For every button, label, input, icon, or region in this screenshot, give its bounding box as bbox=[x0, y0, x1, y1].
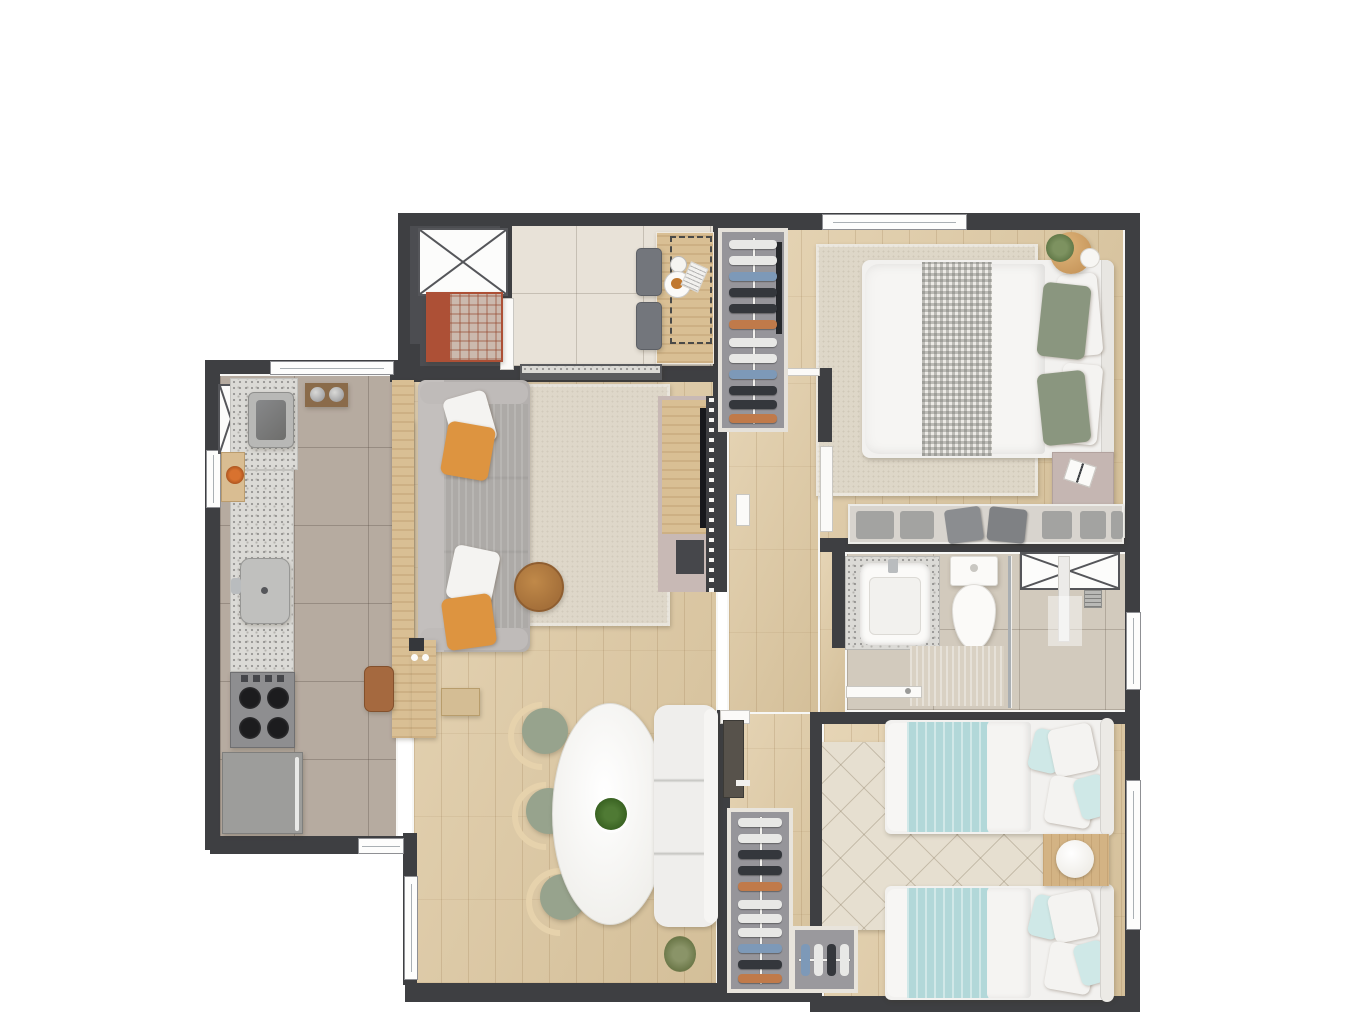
hanging-clothes bbox=[738, 900, 782, 909]
hanging-clothes bbox=[738, 974, 782, 983]
hanging-clothes bbox=[738, 818, 782, 827]
hanging-clothes bbox=[729, 288, 777, 297]
dining-chair-seat bbox=[522, 708, 568, 754]
single-bed bbox=[885, 720, 1114, 834]
door-handle bbox=[905, 688, 911, 694]
white-pillow bbox=[1046, 722, 1099, 778]
hanging-clothes bbox=[738, 882, 782, 891]
orange-pillow bbox=[441, 593, 498, 651]
hanging-clothes bbox=[801, 944, 810, 976]
tall-wardrobe bbox=[727, 808, 793, 993]
hanging-clothes bbox=[729, 256, 777, 265]
folded-clothes bbox=[1111, 511, 1123, 539]
cooktop bbox=[230, 672, 295, 748]
entry-chair bbox=[636, 248, 662, 296]
shower-glass-partition bbox=[1008, 556, 1011, 708]
checked-throw bbox=[922, 262, 992, 456]
duvet-fold bbox=[987, 722, 1031, 832]
floor-plan bbox=[0, 0, 1365, 1024]
fridge-handle bbox=[295, 757, 299, 831]
folded-clothes bbox=[1080, 511, 1106, 539]
hanging-clothes bbox=[729, 320, 777, 329]
window-bedroom2-east bbox=[1126, 780, 1141, 930]
master-dresser bbox=[848, 504, 1124, 544]
hanging-clothes bbox=[738, 834, 782, 843]
table-centerpiece-plant bbox=[595, 798, 627, 830]
elevator-shaft bbox=[418, 228, 508, 296]
kitchen-faucet bbox=[231, 578, 241, 594]
master-door-leaf bbox=[820, 446, 833, 532]
entry-chair bbox=[636, 302, 662, 350]
hanging-clothes bbox=[729, 272, 777, 281]
hanging-clothes bbox=[738, 850, 782, 859]
hanging-clothes bbox=[738, 914, 782, 923]
window-kitchen-south bbox=[358, 838, 404, 854]
hanging-clothes bbox=[814, 944, 823, 976]
window-shower-east bbox=[1126, 612, 1141, 690]
hanging-clothes bbox=[729, 370, 777, 379]
window-dining-west bbox=[404, 876, 418, 980]
mattress-edge bbox=[887, 889, 909, 997]
hanging-clothes bbox=[729, 400, 777, 409]
window-master-north bbox=[822, 214, 967, 230]
aqua-blanket bbox=[907, 888, 989, 998]
burner bbox=[239, 717, 261, 739]
wardrobe-rail bbox=[753, 238, 755, 424]
master-wardrobe bbox=[718, 228, 788, 432]
burner bbox=[239, 687, 261, 709]
potted-plant bbox=[1046, 234, 1074, 262]
cooktop-knobs bbox=[241, 675, 285, 682]
wall-bed2-left bbox=[810, 712, 822, 930]
headboard bbox=[1101, 260, 1114, 458]
media-speaker bbox=[676, 540, 704, 574]
wall-master-left-stub bbox=[818, 368, 832, 442]
floor-plant bbox=[664, 936, 696, 972]
clothes-pile bbox=[986, 506, 1027, 544]
flowers bbox=[226, 466, 244, 484]
hanging-clothes bbox=[729, 240, 777, 249]
coffee-table bbox=[514, 562, 564, 612]
window-kitchen-west bbox=[206, 450, 221, 508]
hanging-clothes bbox=[729, 304, 777, 313]
corner-wardrobe bbox=[791, 926, 858, 993]
vase bbox=[1080, 248, 1100, 268]
wall-bath-left bbox=[832, 552, 845, 648]
mattress-edge bbox=[887, 723, 909, 831]
hanging-clothes bbox=[738, 866, 782, 875]
hanging-clothes bbox=[738, 944, 782, 953]
sink-faucet bbox=[888, 559, 898, 573]
headboard bbox=[1100, 884, 1114, 1002]
clothes-pile bbox=[944, 506, 984, 545]
flush-button bbox=[970, 564, 978, 572]
duvet-fold bbox=[987, 888, 1031, 998]
folded-clothes bbox=[1042, 511, 1072, 539]
wall-top-hall bbox=[398, 213, 718, 226]
burner bbox=[267, 717, 289, 739]
hanging-clothes bbox=[738, 960, 782, 969]
hanging-clothes bbox=[827, 944, 836, 976]
shower-drain bbox=[1084, 590, 1102, 608]
bedroom2-door-leaf bbox=[723, 720, 744, 798]
wall-taps-board bbox=[305, 383, 348, 407]
folded-clothes bbox=[900, 511, 934, 539]
hanging-clothes bbox=[729, 354, 777, 363]
headboard bbox=[1100, 718, 1114, 836]
burner bbox=[267, 687, 289, 709]
white-pillow bbox=[1046, 888, 1099, 944]
sideboard-top bbox=[522, 366, 660, 373]
tap-knob bbox=[329, 387, 344, 402]
dining-bench bbox=[654, 705, 718, 927]
door-handle bbox=[736, 780, 750, 786]
wall-kitchen-corner bbox=[404, 344, 420, 382]
hallway-door-leaf bbox=[736, 494, 750, 526]
hanging-clothes bbox=[729, 414, 777, 423]
wood-stool bbox=[441, 688, 480, 716]
entry-plaid-throw bbox=[450, 294, 501, 360]
hanging-clothes bbox=[729, 338, 777, 347]
sink-basin bbox=[869, 577, 921, 635]
bar-knob bbox=[411, 654, 418, 661]
refrigerator bbox=[222, 752, 303, 834]
sink-drain bbox=[261, 587, 268, 594]
wardrobe-side-shelf bbox=[776, 242, 782, 334]
bench-backrest bbox=[704, 709, 718, 923]
tank-basin bbox=[256, 400, 286, 440]
green-pillow bbox=[1036, 370, 1091, 447]
kitchen-sink bbox=[240, 558, 290, 624]
sofa-backrest bbox=[418, 380, 444, 652]
orange-pillow bbox=[440, 420, 497, 482]
laundry-tank-sink bbox=[248, 392, 294, 448]
folded-clothes bbox=[856, 511, 894, 539]
bathroom-duct-shaft bbox=[1020, 552, 1120, 590]
hanging-clothes bbox=[840, 944, 849, 976]
sofa bbox=[418, 380, 530, 652]
green-pillow bbox=[1036, 282, 1091, 361]
sideboard bbox=[520, 364, 662, 380]
shower-base bbox=[1048, 596, 1082, 646]
single-bed bbox=[885, 886, 1114, 1000]
hanging-clothes bbox=[729, 386, 777, 395]
bath-mat bbox=[910, 646, 1004, 706]
bar-stool bbox=[364, 666, 394, 712]
master-bed bbox=[862, 260, 1114, 458]
tap-knob bbox=[310, 387, 325, 402]
hanging-clothes bbox=[738, 928, 782, 937]
slatted-divider-panel bbox=[706, 396, 717, 592]
aqua-blanket bbox=[907, 722, 989, 832]
breakfast-bar bbox=[392, 380, 414, 738]
espresso-machine bbox=[409, 638, 424, 651]
window-service-north bbox=[270, 361, 394, 375]
round-lamp bbox=[1056, 840, 1094, 878]
